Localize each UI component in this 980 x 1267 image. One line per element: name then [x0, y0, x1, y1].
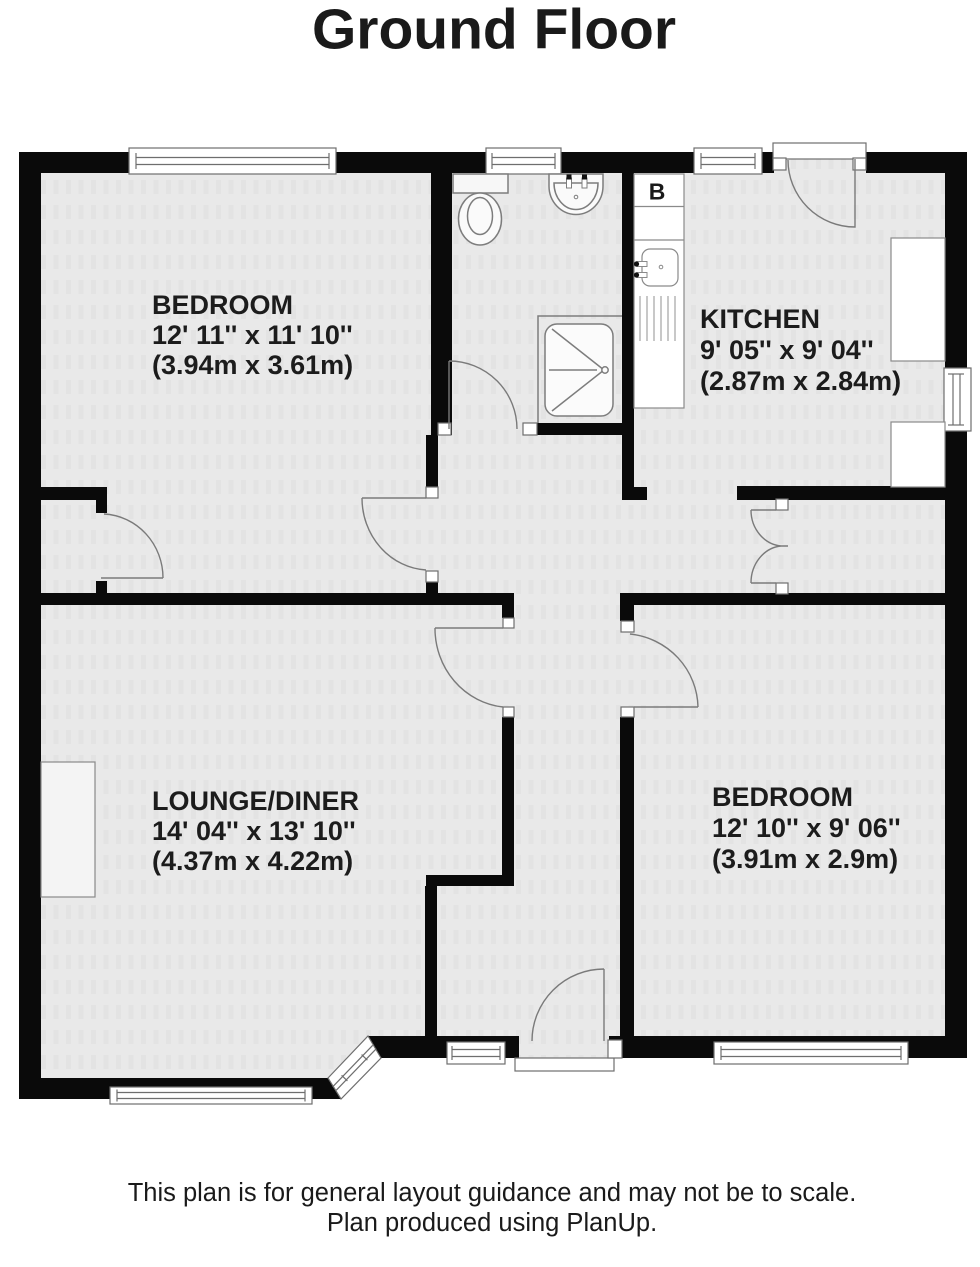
svg-text:B: B: [649, 179, 666, 205]
svg-text:(2.87m x 2.84m): (2.87m x 2.84m): [700, 366, 901, 396]
svg-text:12' 10'' x 9' 06'': 12' 10'' x 9' 06'': [712, 813, 901, 843]
svg-text:(4.37m x 4.22m): (4.37m x 4.22m): [152, 846, 353, 876]
svg-text:BEDROOM: BEDROOM: [152, 290, 293, 320]
svg-text:This plan is for general layou: This plan is for general layout guidance…: [128, 1179, 857, 1207]
svg-text:14' 04'' x 13' 10'': 14' 04'' x 13' 10'': [152, 816, 356, 846]
svg-text:9' 05'' x 9' 04'': 9' 05'' x 9' 04'': [700, 335, 874, 365]
svg-text:(3.94m x 3.61m): (3.94m x 3.61m): [152, 350, 353, 380]
svg-text:BEDROOM: BEDROOM: [712, 782, 853, 812]
svg-text:Plan produced using PlanUp.: Plan produced using PlanUp.: [327, 1209, 657, 1237]
svg-text:Ground Floor: Ground Floor: [312, 0, 676, 62]
svg-text:KITCHEN: KITCHEN: [700, 304, 820, 334]
svg-text:(3.91m x 2.9m): (3.91m x 2.9m): [712, 844, 898, 874]
svg-text:LOUNGE/DINER: LOUNGE/DINER: [152, 786, 359, 816]
svg-text:12' 11'' x 11' 10'': 12' 11'' x 11' 10'': [152, 320, 353, 350]
